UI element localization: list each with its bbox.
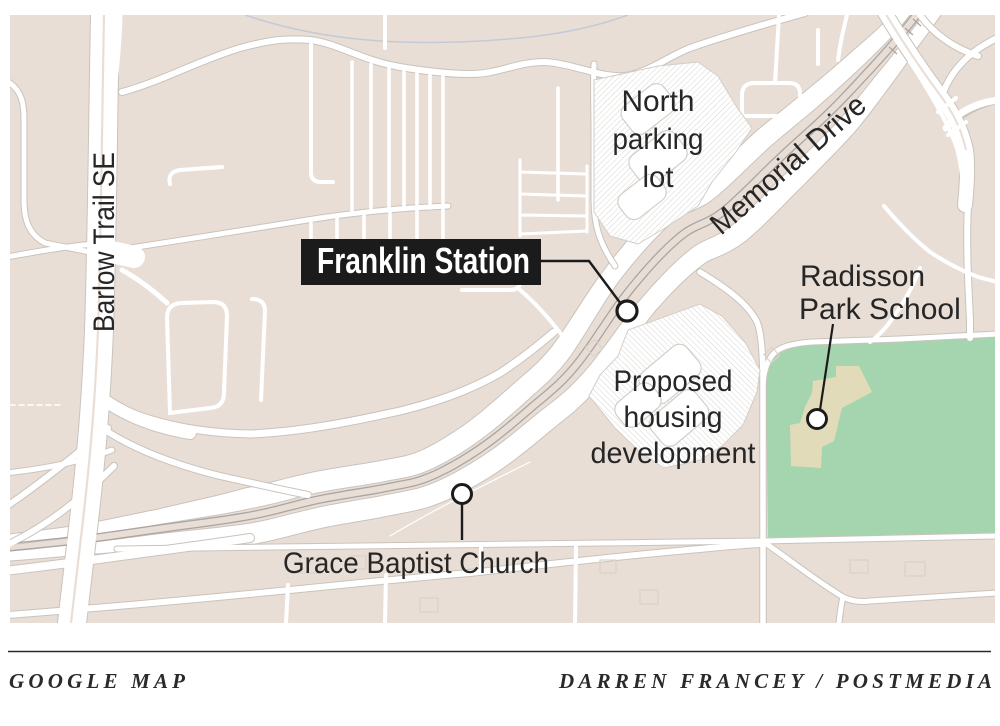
svg-text:Grace Baptist Church: Grace Baptist Church — [283, 547, 549, 580]
svg-text:housing: housing — [624, 401, 723, 434]
svg-text:Barlow Trail SE: Barlow Trail SE — [88, 152, 121, 332]
svg-text:Franklin Station: Franklin Station — [317, 240, 530, 281]
svg-text:development: development — [591, 437, 757, 470]
svg-text:North: North — [622, 85, 695, 118]
svg-text:GOOGLE MAP: GOOGLE MAP — [9, 669, 185, 693]
svg-text:Proposed: Proposed — [614, 365, 733, 398]
svg-text:lot: lot — [643, 161, 675, 194]
svg-text:Radisson: Radisson — [800, 260, 925, 293]
svg-text:Park School: Park School — [799, 293, 961, 326]
svg-text:parking: parking — [613, 123, 704, 156]
